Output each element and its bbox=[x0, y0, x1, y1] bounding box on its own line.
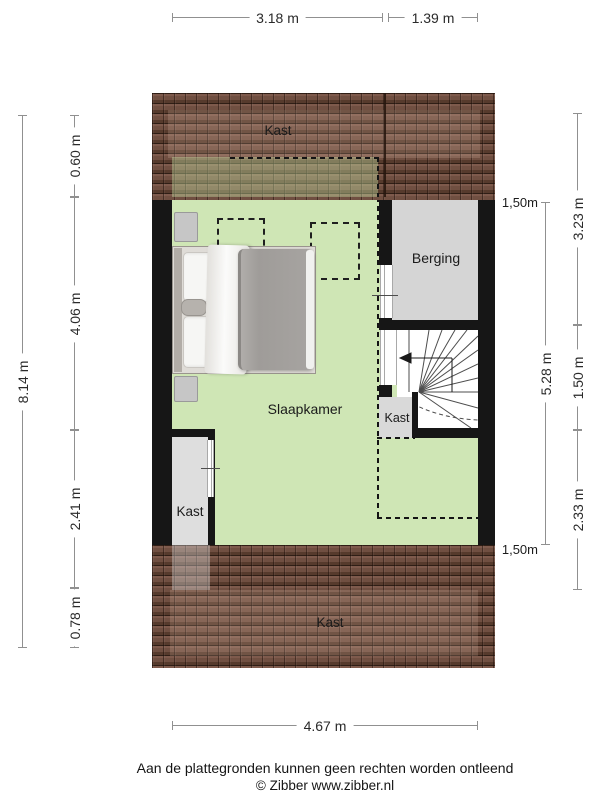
roof-top-dashed-v bbox=[377, 157, 379, 197]
knee-wall-label-top: 1,50m bbox=[498, 196, 538, 209]
wall-right bbox=[478, 197, 495, 548]
storage-door bbox=[380, 265, 393, 318]
dim-label-left-total: 8.14 m bbox=[16, 353, 30, 410]
dim-label-right-seg-1: 3.23 m bbox=[571, 191, 585, 248]
stairs-opening bbox=[380, 330, 397, 385]
headroom-dashed-line-vertical bbox=[377, 197, 379, 518]
roof-bottom-closet-label: Kast bbox=[290, 616, 370, 630]
roof-top-underroof-floor bbox=[172, 157, 378, 197]
dim-line-left-seg-2: 4.06 m bbox=[74, 197, 75, 430]
dim-label-left-seg-3: 2.41 m bbox=[68, 481, 82, 538]
dim-label-left-seg-2: 4.06 m bbox=[68, 285, 82, 342]
floorplan-page: 3.18 m 1.39 m 4.67 m 8.14 m 0.60 m 4.06 … bbox=[0, 0, 600, 800]
dim-line-left-seg-4: 0.78 m bbox=[74, 588, 75, 648]
roof-top: Kast bbox=[152, 93, 495, 200]
wall-box-bottom bbox=[174, 376, 198, 402]
dim-line-top-2: 1.39 m bbox=[388, 17, 478, 18]
stairs-closet-dashed-bottom bbox=[377, 437, 415, 439]
wall-stairs-left bbox=[379, 385, 392, 397]
left-closet-label: Kast bbox=[160, 505, 220, 519]
roof-top-closet-label: Kast bbox=[238, 124, 318, 138]
wall-storage-stairs-divider bbox=[379, 320, 478, 330]
stairs-closet-label: Kast bbox=[377, 412, 417, 425]
wall-box-top bbox=[174, 212, 198, 242]
wall-left bbox=[152, 197, 172, 548]
roof-top-dashed-h bbox=[230, 157, 378, 159]
dim-label-top-1: 3.18 m bbox=[249, 11, 306, 25]
left-closet-door-tick bbox=[201, 468, 220, 469]
knee-wall-label-bottom: 1,50m bbox=[498, 543, 538, 556]
footer-disclaimer: Aan de plattegronden kunnen geen rechten… bbox=[75, 760, 575, 776]
wall-stairs-bottom bbox=[412, 428, 478, 438]
bed-duvet-fold bbox=[306, 250, 314, 369]
dim-label-right-seg-2: 1.50 m bbox=[571, 349, 585, 406]
dim-line-right-inner: 5.28 m bbox=[545, 202, 546, 545]
dim-line-top-1: 3.18 m bbox=[172, 17, 383, 18]
dim-line-right-seg-3: 2.33 m bbox=[577, 430, 578, 590]
dim-label-left-seg-4: 0.78 m bbox=[68, 590, 82, 647]
dim-label-bottom: 4.67 m bbox=[297, 719, 354, 733]
roof-top-divider bbox=[384, 93, 386, 197]
dim-line-right-seg-2: 1.50 m bbox=[577, 325, 578, 430]
wall-storage-left-upper bbox=[379, 197, 392, 265]
dim-label-top-2: 1.39 m bbox=[405, 11, 462, 25]
dim-line-left-seg-3: 2.41 m bbox=[74, 430, 75, 588]
dim-line-left-total: 8.14 m bbox=[22, 115, 23, 648]
bed bbox=[172, 246, 316, 374]
dim-label-left-seg-1: 0.60 m bbox=[68, 128, 82, 185]
bed-duvet bbox=[238, 249, 313, 370]
dim-label-right-seg-3: 2.33 m bbox=[571, 482, 585, 539]
headroom-dashed-line-horizontal bbox=[377, 517, 478, 519]
dim-line-left-seg-1: 0.60 m bbox=[74, 115, 75, 197]
dim-line-bottom: 4.67 m bbox=[172, 725, 478, 726]
roof-window-outline-2 bbox=[310, 222, 360, 280]
footer-copyright: © Zibber www.zibber.nl bbox=[75, 778, 575, 793]
bed-cushion-roll bbox=[181, 299, 207, 316]
left-closet-floor bbox=[172, 437, 208, 545]
roof-bottom: Kast bbox=[152, 545, 495, 668]
roof-top-closet-zone bbox=[168, 110, 480, 158]
dim-line-right-seg-1: 3.23 m bbox=[577, 113, 578, 325]
bedroom-label: Slaapkamer bbox=[235, 402, 375, 416]
storage-door-tick bbox=[372, 295, 398, 296]
wall-left-closet-top bbox=[172, 429, 215, 437]
storage-label: Berging bbox=[396, 251, 476, 265]
roof-bottom-closet-strip bbox=[172, 545, 210, 590]
dim-label-right-inner: 5.28 m bbox=[539, 345, 553, 402]
